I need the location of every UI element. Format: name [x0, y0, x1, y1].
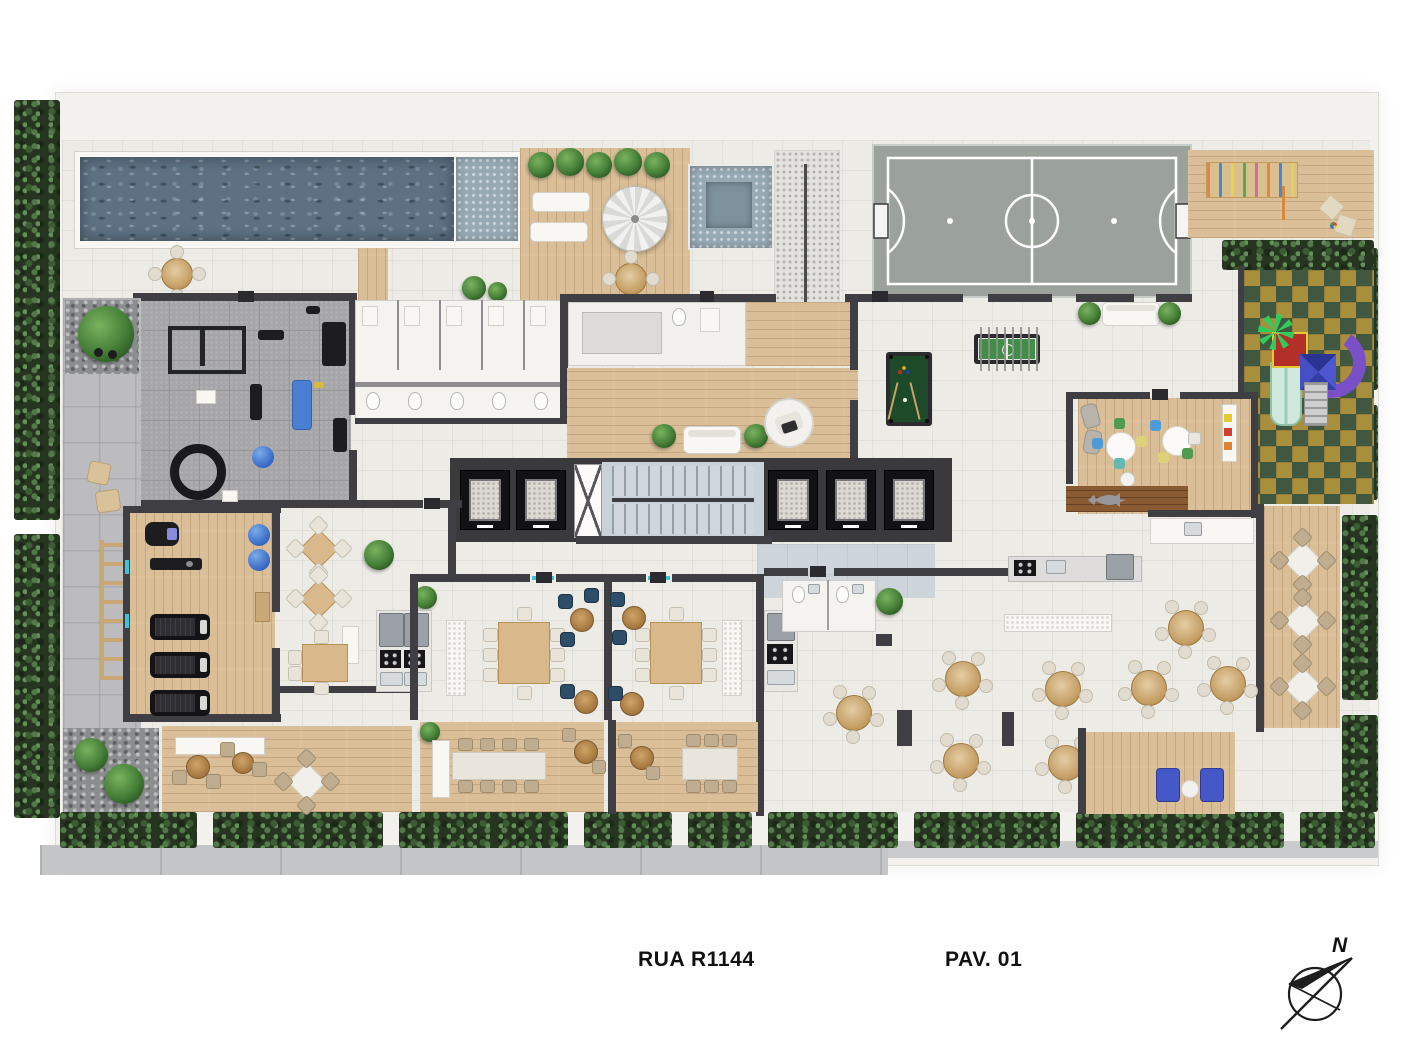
- stall-divider: [481, 300, 483, 370]
- toy-box-yellow: [1224, 414, 1232, 422]
- chair: [1269, 550, 1290, 571]
- compass-north-icon: N: [1272, 936, 1372, 1036]
- chair: [977, 761, 991, 775]
- wall: [1066, 392, 1150, 399]
- pocket: [925, 355, 929, 359]
- elevator-door: [901, 525, 917, 528]
- toilet: [836, 586, 849, 603]
- dining-table-set: [1032, 658, 1092, 718]
- chair: [483, 668, 498, 682]
- chair: [483, 628, 498, 642]
- chair: [252, 762, 267, 777]
- terrace-table-set: [1270, 654, 1334, 718]
- chair: [1165, 688, 1179, 702]
- chair: [192, 267, 206, 281]
- chair: [1292, 634, 1313, 655]
- kids-chair-white: [1188, 432, 1201, 445]
- small-dumbbells: [314, 382, 324, 388]
- chair: [1202, 628, 1216, 642]
- chair: [332, 538, 353, 559]
- sink: [380, 672, 403, 686]
- chair: [332, 588, 353, 609]
- chair: [1194, 601, 1208, 615]
- chair: [502, 780, 517, 793]
- dining-table: [682, 748, 738, 780]
- kitchen-counter: [1150, 518, 1254, 544]
- long-table: [452, 752, 546, 780]
- bistro-table: [232, 752, 254, 774]
- treadmill: [150, 652, 210, 678]
- gym-bench: [258, 330, 284, 340]
- rig-bar: [200, 326, 205, 366]
- bistro-table: [570, 608, 594, 632]
- chair: [686, 780, 701, 793]
- chair: [1292, 587, 1313, 608]
- wall: [410, 574, 418, 720]
- wall: [764, 568, 808, 576]
- chair: [308, 515, 329, 536]
- step-box: [196, 390, 216, 404]
- chair: [220, 742, 235, 757]
- buffet-island: [722, 620, 742, 696]
- wall: [1180, 392, 1258, 399]
- chair-navy: [612, 630, 627, 645]
- training-tire: [170, 444, 226, 500]
- door-frame: [872, 291, 888, 302]
- pocket: [889, 355, 893, 359]
- sun-lounger: [532, 192, 590, 212]
- chair: [862, 686, 876, 700]
- wall: [834, 568, 1008, 576]
- chair: [602, 272, 616, 286]
- chair: [1032, 688, 1046, 702]
- chair: [480, 738, 495, 751]
- chair: [285, 588, 306, 609]
- hedge-bottom-8: [1076, 812, 1284, 848]
- toilet: [450, 392, 464, 410]
- shower-tray: [488, 306, 504, 326]
- chair: [669, 686, 684, 700]
- wall: [988, 294, 1052, 302]
- chair: [702, 668, 717, 682]
- table: [1168, 610, 1204, 646]
- sink: [1046, 560, 1066, 574]
- elevator: [516, 470, 566, 530]
- chair: [969, 734, 983, 748]
- chair: [1269, 610, 1290, 631]
- sink: [808, 584, 820, 594]
- chair: [1244, 684, 1258, 698]
- chair: [288, 650, 302, 665]
- sink: [1184, 522, 1202, 536]
- chair: [646, 272, 660, 286]
- pullup-rig: [168, 326, 246, 374]
- wall: [418, 574, 530, 582]
- hedge-bottom-2: [213, 812, 383, 848]
- dining-table-set: [930, 730, 990, 790]
- bistro-table: [622, 606, 646, 630]
- pool-shallow-ledge: [456, 157, 518, 241]
- chair: [1165, 600, 1179, 614]
- chair: [1157, 661, 1171, 675]
- toilet: [492, 392, 506, 410]
- chair: [1118, 687, 1132, 701]
- billiards-table: [886, 352, 932, 426]
- plant: [420, 722, 440, 742]
- chair: [502, 738, 517, 751]
- wall: [556, 574, 606, 582]
- treadmill-deck: [155, 618, 195, 636]
- chair: [206, 774, 221, 789]
- toilet: [408, 392, 422, 410]
- long-table: [302, 644, 348, 682]
- wall-stub: [876, 634, 892, 646]
- chair: [1141, 705, 1155, 719]
- door-glass: [125, 560, 129, 574]
- chair: [517, 607, 532, 621]
- exercise-ball: [252, 446, 274, 468]
- terrace-table-set: [1270, 588, 1334, 652]
- goal-left: [874, 204, 888, 238]
- wall: [672, 574, 758, 582]
- chair: [646, 766, 660, 780]
- swimming-pool: [80, 157, 454, 241]
- chair: [483, 648, 498, 662]
- wall: [1078, 728, 1086, 814]
- elevator-cab: [835, 479, 867, 521]
- plant: [364, 540, 394, 570]
- kids-chair-yellow: [1158, 452, 1169, 463]
- chair: [296, 795, 317, 816]
- plant: [876, 588, 903, 615]
- dining-table-set: [932, 648, 992, 708]
- chair: [1079, 689, 1093, 703]
- chair: [930, 760, 944, 774]
- sports-court: [872, 144, 1192, 298]
- dining-table-set: [1197, 653, 1257, 713]
- hall-corridor: [746, 302, 858, 366]
- chair: [722, 734, 737, 747]
- playground-stairs: [1304, 382, 1328, 426]
- lounge-chair-blue: [1200, 768, 1224, 802]
- fridge: [379, 613, 404, 647]
- plant: [1158, 302, 1181, 325]
- plant: [652, 424, 676, 448]
- dining-table-set: [1118, 657, 1178, 717]
- hedge-left-lower: [14, 534, 60, 818]
- treadmill-console: [200, 658, 207, 672]
- plant: [586, 152, 612, 178]
- exercise-ball: [248, 549, 270, 571]
- chair: [1197, 683, 1211, 697]
- street-label: RUA R1144: [638, 948, 755, 972]
- elevator: [884, 470, 934, 530]
- chair-navy: [560, 684, 575, 699]
- billiard-ball: [898, 370, 902, 374]
- toilet: [792, 586, 805, 603]
- chair: [846, 730, 860, 744]
- dining-table-set: [1155, 597, 1215, 657]
- chair: [314, 682, 329, 695]
- kids-chair-green: [1182, 448, 1193, 459]
- stair-handrail: [612, 498, 754, 502]
- chair: [320, 771, 341, 792]
- chair: [172, 770, 187, 785]
- bench: [432, 740, 450, 798]
- chair: [1316, 550, 1337, 571]
- wall: [850, 400, 858, 462]
- hedge-bottom-1: [60, 812, 197, 848]
- bike-console: [167, 528, 177, 540]
- stall-divider: [827, 580, 829, 630]
- table: [1131, 670, 1167, 706]
- wall: [1251, 392, 1258, 518]
- chair: [1045, 735, 1059, 749]
- terrace-table-set: [1270, 528, 1334, 592]
- chair: [314, 630, 329, 644]
- elevator-cab: [777, 479, 809, 521]
- chair-navy: [584, 588, 599, 603]
- chair: [296, 748, 317, 769]
- chair: [1220, 701, 1234, 715]
- ramp-handrail: [804, 164, 807, 310]
- chair: [458, 780, 473, 793]
- lounge-chair-blue: [1156, 768, 1180, 802]
- elevator-door: [533, 525, 549, 528]
- sofa: [1102, 302, 1160, 326]
- rowing-machine: [150, 558, 202, 570]
- chair: [517, 686, 532, 700]
- round-daybed: [764, 398, 814, 448]
- treadmill-deck: [155, 694, 195, 712]
- chair: [1055, 706, 1069, 720]
- chair: [480, 780, 495, 793]
- floor-plan-rendering: RUA R1144 PAV. 01 N: [0, 0, 1417, 1037]
- chair: [971, 652, 985, 666]
- chair: [1292, 653, 1313, 674]
- sofa-back: [1106, 305, 1156, 311]
- foosball-table: [974, 334, 1040, 364]
- wood-threshold: [358, 248, 388, 302]
- hedge-right-3: [1342, 515, 1378, 700]
- bistro-table: [620, 692, 644, 716]
- wall: [560, 294, 776, 302]
- chair: [1269, 676, 1290, 697]
- chair: [704, 780, 719, 793]
- hedge-bottom-3: [399, 812, 568, 848]
- table: [943, 743, 979, 779]
- shark-rug: [1086, 492, 1128, 508]
- elevator-door: [843, 525, 859, 528]
- palm-decoration: [1258, 314, 1294, 350]
- stall-wall: [355, 382, 565, 387]
- kids-stool: [1120, 472, 1135, 487]
- cue-ball: [903, 398, 907, 402]
- coo ktop: [380, 650, 401, 668]
- chair: [1316, 676, 1337, 697]
- gym-equipment: [306, 306, 320, 314]
- chair: [1035, 762, 1049, 776]
- elevator-cab: [525, 479, 557, 521]
- bush: [74, 738, 108, 772]
- chair: [979, 679, 993, 693]
- pouf: [95, 488, 122, 513]
- wall: [845, 294, 963, 302]
- bush: [104, 764, 144, 804]
- steam-room: [582, 312, 662, 354]
- table: [836, 695, 872, 731]
- sink: [767, 670, 795, 685]
- gym-stick: [1282, 186, 1285, 220]
- cooktop: [767, 644, 793, 664]
- wall: [272, 506, 280, 612]
- kids-chair-blue: [1150, 420, 1161, 431]
- chair: [953, 778, 967, 792]
- door-frame: [536, 572, 552, 583]
- chair: [686, 734, 701, 747]
- plant: [644, 152, 670, 178]
- hedge-right-4: [1342, 715, 1378, 812]
- wall: [272, 648, 280, 722]
- wall: [1148, 510, 1260, 517]
- treadmill-console: [200, 620, 207, 634]
- door-frame: [650, 572, 666, 583]
- chair: [285, 538, 306, 559]
- chair-navy: [560, 632, 575, 647]
- chair: [833, 685, 847, 699]
- wall: [448, 506, 456, 582]
- service-shaft: [574, 464, 602, 538]
- toy-ball: [1330, 222, 1337, 229]
- chair: [1128, 660, 1142, 674]
- dining-table: [498, 622, 550, 684]
- dark-bench: [1002, 712, 1014, 746]
- hedge-bottom-7: [914, 812, 1060, 848]
- chair: [1292, 527, 1313, 548]
- wall: [1256, 504, 1264, 732]
- sun-lounger: [530, 222, 588, 242]
- tree: [78, 306, 134, 362]
- terrace-table-set: [274, 749, 338, 813]
- wall: [576, 536, 772, 544]
- floor-label: PAV. 01: [945, 948, 1022, 972]
- elevator: [768, 470, 818, 530]
- chair: [1292, 700, 1313, 721]
- chair: [288, 666, 302, 681]
- chair: [1071, 662, 1085, 676]
- door-frame: [424, 498, 440, 509]
- chair: [308, 565, 329, 586]
- cooktop: [1014, 560, 1036, 576]
- spin-bike: [145, 522, 179, 546]
- hedge-bottom-5: [688, 812, 752, 848]
- sink: [852, 584, 864, 594]
- plant: [1078, 302, 1101, 325]
- shower-tray: [404, 306, 420, 326]
- table: [1210, 666, 1246, 702]
- chair: [618, 734, 632, 748]
- elevator-cab: [469, 479, 501, 521]
- door-glass: [125, 614, 129, 628]
- chair: [635, 628, 650, 642]
- chair: [1042, 661, 1056, 675]
- sofa: [683, 426, 741, 454]
- chair: [1058, 780, 1072, 794]
- spa-deep-center: [706, 182, 752, 228]
- toilet: [534, 392, 548, 410]
- chair: [1207, 656, 1221, 670]
- dumbbell: [94, 348, 103, 357]
- chair: [1316, 610, 1337, 631]
- chair: [942, 651, 956, 665]
- cue-stick: [887, 382, 898, 419]
- chair: [940, 733, 954, 747]
- parasol-umbrella: [602, 186, 668, 252]
- pocket: [889, 419, 893, 423]
- chair: [702, 628, 717, 642]
- stall-divider: [523, 300, 525, 370]
- chair: [1236, 657, 1250, 671]
- hedge-left-upper: [14, 100, 60, 520]
- table: [1045, 671, 1081, 707]
- dark-bench: [897, 710, 912, 746]
- chair: [458, 738, 473, 751]
- stall-divider: [397, 300, 399, 370]
- treadmill: [150, 690, 210, 716]
- chair: [524, 738, 539, 751]
- stair-flight-upper: [612, 466, 754, 496]
- access-ramp: [774, 150, 840, 312]
- dining-table-set: [823, 682, 883, 742]
- plant: [556, 148, 584, 176]
- table: [945, 661, 981, 697]
- shower-tray: [446, 306, 462, 326]
- rower-seat: [186, 561, 193, 567]
- toy-box-orange: [1224, 442, 1232, 450]
- wall: [1066, 392, 1073, 484]
- gym-machine: [333, 418, 347, 452]
- kids-chair-blue: [1092, 438, 1103, 449]
- sidewalk: [40, 845, 888, 875]
- hedge-bottom-9: [1300, 812, 1375, 848]
- kids-chair-teal: [1114, 458, 1125, 469]
- hedge-bottom-6: [768, 812, 898, 848]
- billiard-ball: [906, 370, 910, 374]
- elevator-cab: [893, 479, 925, 521]
- exercise-ball: [248, 524, 270, 546]
- stall-divider: [439, 300, 441, 370]
- gym-bench: [250, 384, 262, 420]
- stair-flight-lower: [612, 504, 754, 534]
- shower-tray: [362, 306, 378, 326]
- chair: [722, 780, 737, 793]
- chair: [273, 771, 294, 792]
- chair: [955, 696, 969, 710]
- fridge: [1106, 554, 1134, 580]
- chair: [148, 267, 162, 281]
- umbrella-pole: [631, 215, 639, 223]
- treadmill-deck: [155, 656, 195, 674]
- kids-chair-green: [1114, 418, 1125, 429]
- buffet-island: [446, 620, 466, 696]
- door-frame: [238, 291, 254, 302]
- table: [161, 258, 193, 290]
- pouf: [86, 460, 112, 486]
- wall: [1076, 294, 1134, 302]
- wall: [123, 506, 281, 513]
- bistro-table-set: [286, 566, 350, 630]
- hedge-bottom-4: [584, 812, 672, 848]
